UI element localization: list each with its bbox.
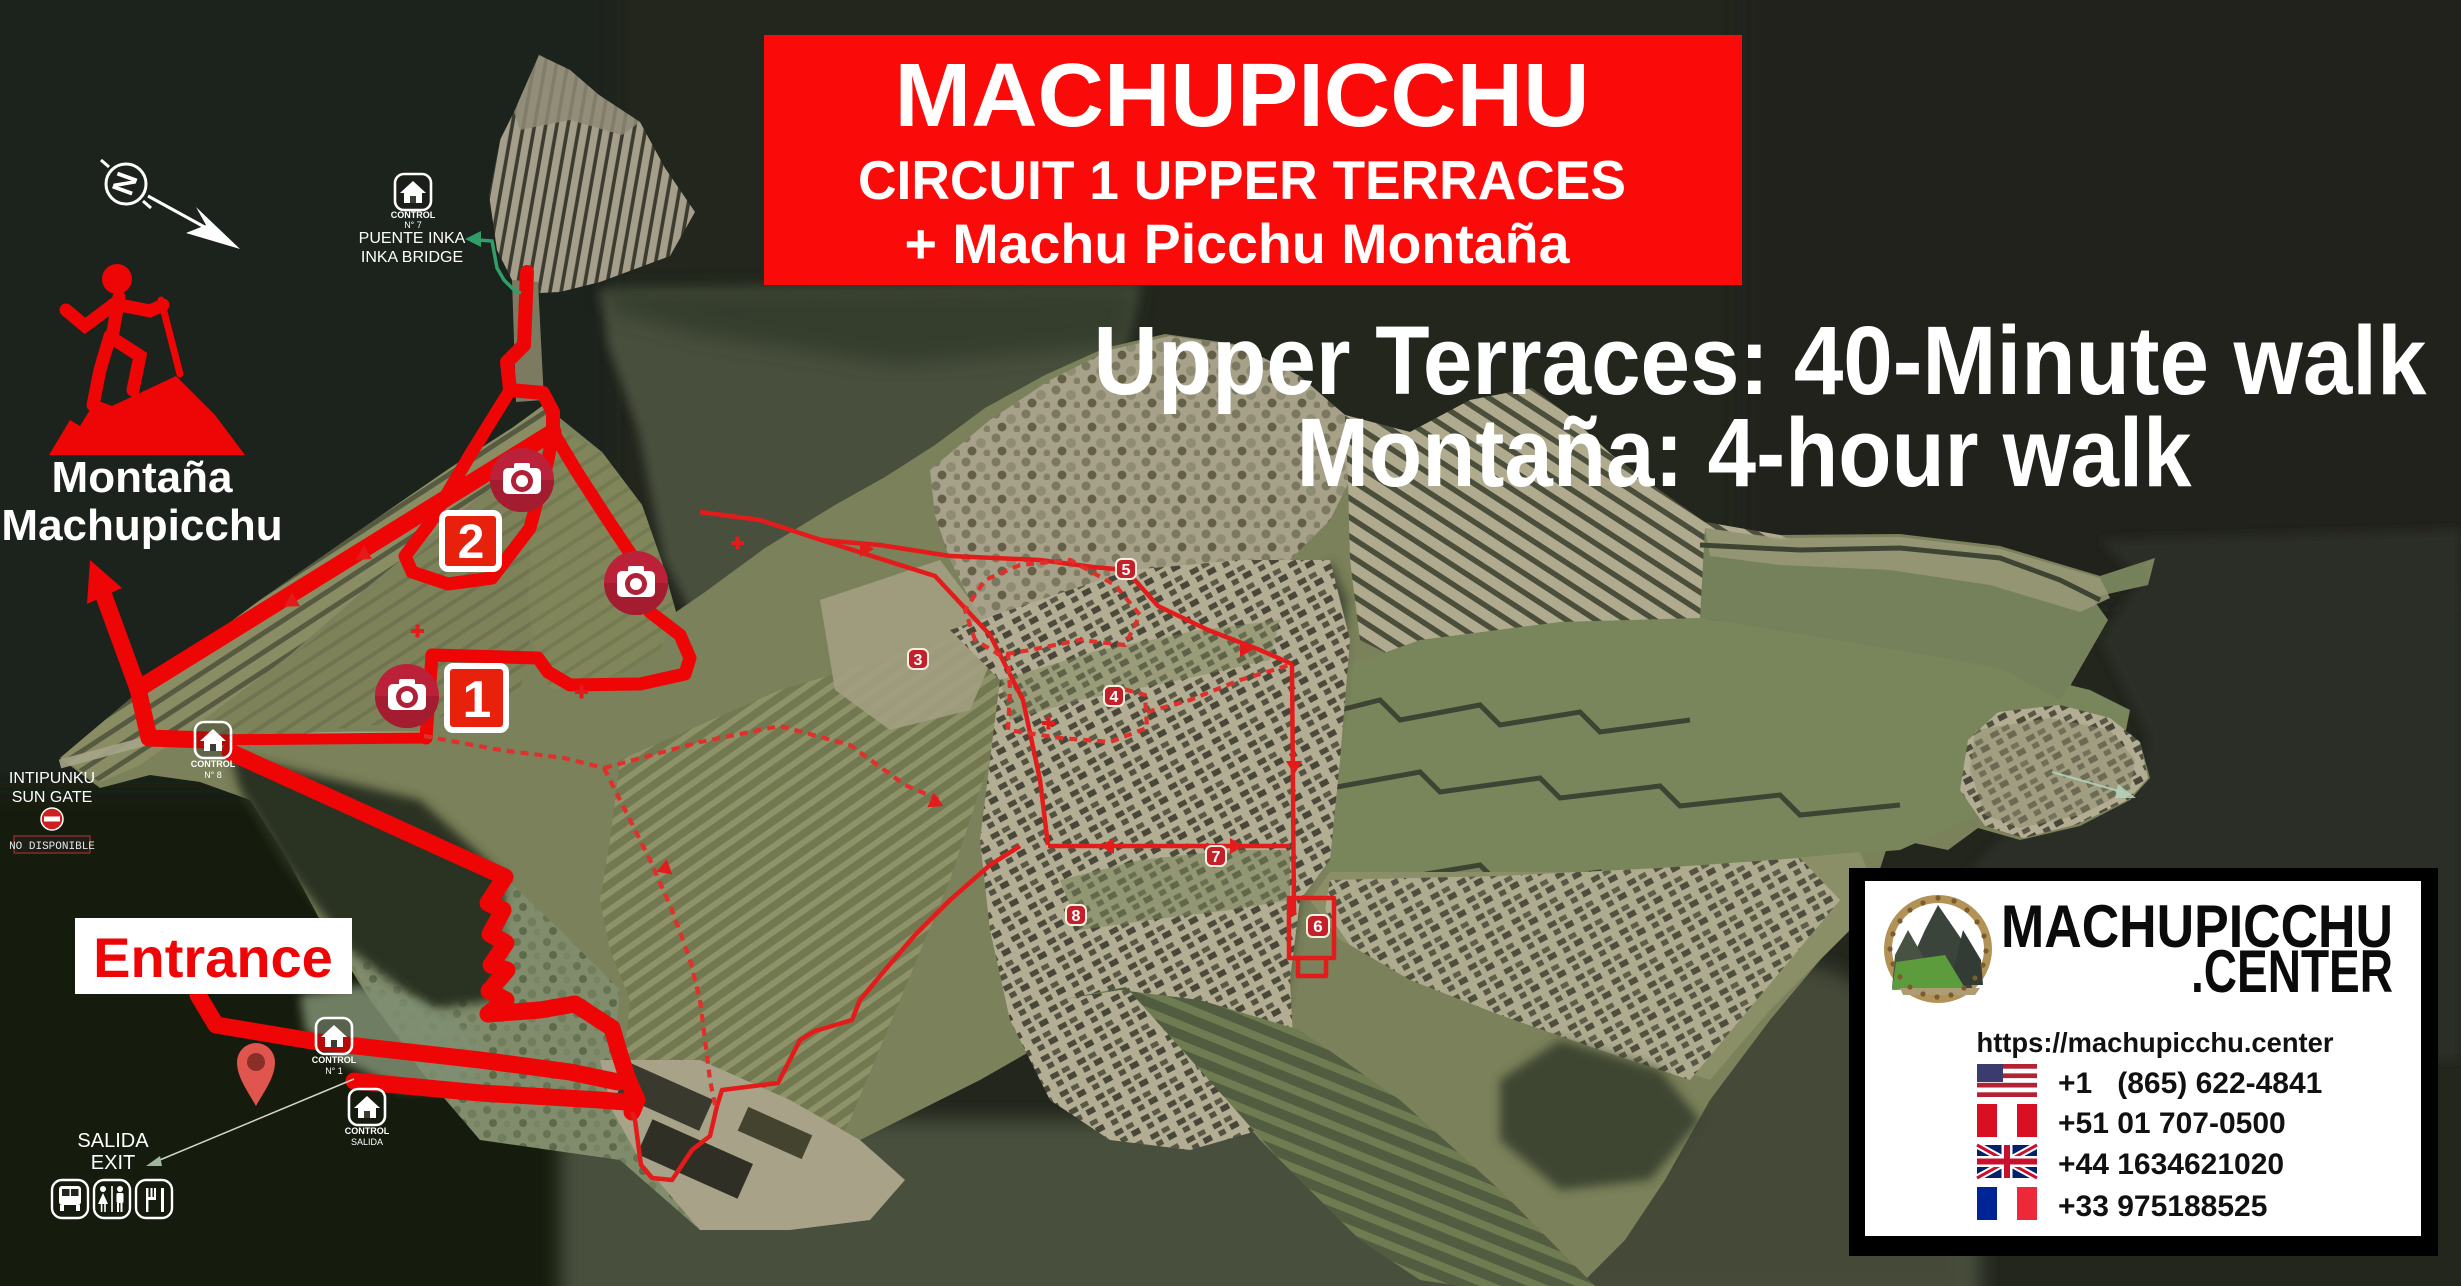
svg-text:8: 8 <box>1072 908 1081 925</box>
svg-text:https://machupicchu.center: https://machupicchu.center <box>1977 1027 2334 1058</box>
svg-text:CONTROL: CONTROL <box>191 759 236 769</box>
svg-text:Montaña: Montaña <box>52 453 233 502</box>
svg-text:SALIDA: SALIDA <box>77 1130 149 1152</box>
svg-text:SALIDA: SALIDA <box>351 1137 383 1147</box>
svg-text:.CENTER: .CENTER <box>2191 938 2393 1005</box>
svg-text:+51 01 707-0500: +51 01 707-0500 <box>2058 1107 2286 1140</box>
svg-text:Machupicchu: Machupicchu <box>1 501 282 550</box>
svg-text:INKA BRIDGE: INKA BRIDGE <box>361 249 463 266</box>
svg-text:Montaña: 4-hour walk: Montaña: 4-hour walk <box>1297 398 2193 507</box>
svg-text:CIRCUIT 1 UPPER TERRACES: CIRCUIT 1 UPPER TERRACES <box>858 149 1626 211</box>
svg-text:3: 3 <box>914 652 923 669</box>
svg-text:+ Machu Picchu Montaña: + Machu Picchu Montaña <box>905 212 1571 275</box>
svg-text:MACHUPICCHU: MACHUPICCHU <box>895 46 1590 146</box>
svg-text:5: 5 <box>1122 562 1131 579</box>
svg-text:1: 1 <box>463 671 492 729</box>
svg-text:CONTROL: CONTROL <box>312 1055 357 1065</box>
svg-text:N° 8: N° 8 <box>204 770 222 780</box>
svg-text:EXIT: EXIT <box>91 1152 135 1174</box>
svg-text:N° 7: N° 7 <box>404 220 422 230</box>
svg-text:N° 1: N° 1 <box>325 1066 343 1076</box>
svg-text:CONTROL: CONTROL <box>345 1126 390 1136</box>
svg-text:PUENTE INKA: PUENTE INKA <box>359 230 466 247</box>
svg-text:Entrance: Entrance <box>93 926 333 989</box>
svg-text:4: 4 <box>1110 689 1119 706</box>
svg-text:NO DISPONIBLE: NO DISPONIBLE <box>9 841 95 853</box>
svg-text:2: 2 <box>458 516 485 569</box>
svg-text:INTIPUNKU: INTIPUNKU <box>9 770 95 787</box>
svg-text:7: 7 <box>1212 849 1221 866</box>
svg-text:6: 6 <box>1313 917 1322 936</box>
svg-text:+1 (865) 622-4841: +1 (865) 622-4841 <box>2058 1067 2322 1100</box>
svg-text:+44 1634621020: +44 1634621020 <box>2058 1148 2284 1181</box>
svg-text:SUN GATE: SUN GATE <box>12 789 93 806</box>
svg-text:+33 975188525: +33 975188525 <box>2058 1190 2267 1223</box>
svg-text:CONTROL: CONTROL <box>391 210 436 220</box>
